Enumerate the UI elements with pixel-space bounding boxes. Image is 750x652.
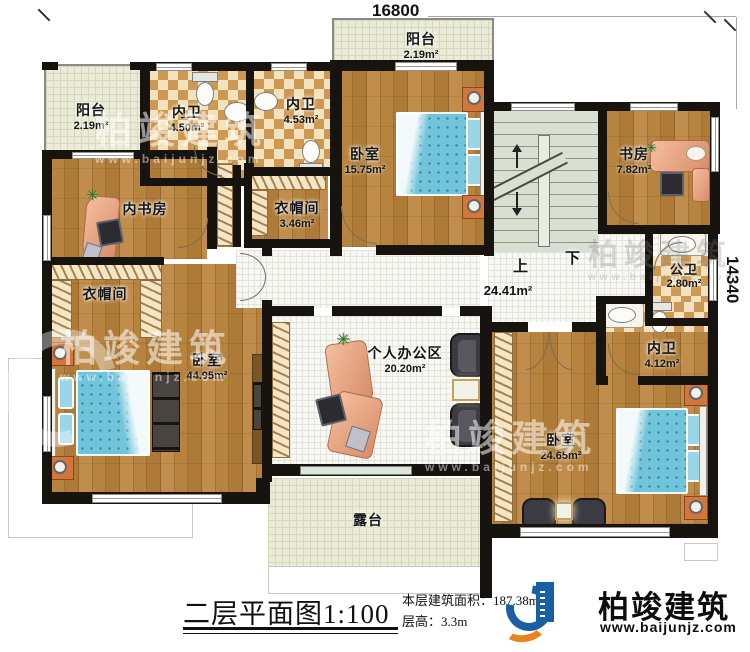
room-label-pub-bath: 公卫 2.80m² (647, 259, 721, 290)
dimension-top: 16800 (372, 1, 419, 21)
stair-arrow-up (512, 144, 522, 152)
office-floor (272, 316, 480, 464)
room-label-bedroom-a: 卧室 15.75m² (325, 144, 405, 176)
bed-blanket (112, 370, 150, 456)
nightstand (462, 87, 486, 112)
lamp-icon (53, 346, 67, 360)
room-label-bath-b: 内卫 4.53m² (261, 94, 341, 126)
room-name: 阳台 (381, 29, 461, 49)
floor-plan: ✳ ✳ ✳ (0, 0, 750, 652)
room-label-inner-study: 内书房 (105, 199, 185, 219)
room-name: 内卫 (622, 338, 702, 358)
closet-rack (217, 164, 233, 246)
room-name: 书房 (594, 144, 674, 164)
stair-rail (538, 135, 550, 247)
room-name: 卧室 (521, 430, 601, 450)
break-mark-icon (38, 9, 51, 22)
closet-rack (50, 263, 162, 280)
wall (638, 376, 718, 385)
room-area: 3.46m² (257, 218, 337, 230)
stairs-up-label: 上 (510, 255, 532, 276)
plant-icon: ✳ (86, 186, 99, 204)
window (511, 103, 575, 111)
stairs-down: 下 (562, 247, 584, 268)
wall (48, 257, 164, 265)
room-name: 卧室 (325, 144, 405, 164)
wall (250, 167, 334, 176)
lamp-icon (467, 199, 481, 213)
window (43, 396, 51, 452)
window (520, 527, 670, 537)
side-table (555, 502, 573, 520)
room-area: 2.19m² (51, 120, 131, 132)
hall-area-label: 24.41m² (448, 283, 568, 298)
wall (244, 239, 336, 248)
wall (488, 322, 528, 332)
room-label-balcony-tl: 阳台 2.19m² (51, 100, 131, 132)
room-name: 内卫 (261, 94, 341, 114)
study-desk (692, 168, 710, 202)
logo-window-dots (540, 587, 545, 617)
room-name: 个人办公区 (345, 343, 465, 363)
drawing-title: 二层平面图 (183, 599, 323, 629)
room-area: 24.65m² (521, 450, 601, 462)
armchair (522, 498, 556, 526)
closet-rack (494, 332, 513, 522)
hat-icon (686, 146, 706, 161)
nightstand (684, 382, 708, 406)
wall (596, 376, 608, 385)
room-label-cloak-b: 衣帽间 (65, 284, 145, 304)
lamp-icon (53, 460, 67, 474)
room-label-study: 书房 7.82m² (594, 144, 674, 176)
lamp-icon (689, 386, 703, 400)
room-label-cloak-a: 衣帽间 3.46m² (257, 198, 337, 230)
room-area: 7.82m² (594, 164, 674, 176)
armchair (450, 403, 482, 447)
room-name: 内卫 (147, 102, 227, 122)
window (271, 63, 307, 71)
wall (484, 60, 494, 256)
wall (262, 242, 272, 256)
room-area: 4.12m² (622, 358, 702, 370)
computer-icon (96, 218, 124, 247)
title-underline (183, 627, 398, 630)
tv-icon (253, 382, 262, 430)
stair-arrow-line (516, 150, 518, 168)
drawing-scale: 1:100 (323, 599, 390, 629)
nightstand (684, 496, 708, 520)
wall (244, 163, 252, 247)
room-area: 4.50m² (147, 122, 227, 134)
stairs-down-label: 下 (562, 247, 584, 268)
bedside-chest (152, 372, 180, 452)
terrace-door (300, 466, 412, 475)
wall (233, 165, 241, 247)
floor-height-value: 3.3m (441, 614, 467, 629)
room-label-master-bedroom: 卧室 44.95m² (167, 350, 247, 382)
eave-outline (684, 543, 718, 561)
toilet-icon (192, 72, 218, 82)
lamp-icon (467, 91, 481, 105)
room-area: 2.80m² (647, 278, 721, 290)
armchair (572, 498, 606, 526)
wall (376, 245, 488, 255)
room-label-balcony-tc: 阳台 2.19m² (381, 29, 461, 61)
window (711, 117, 719, 172)
room-label-terrace: 露台 (328, 510, 408, 530)
nightstand (462, 195, 486, 219)
wall (330, 245, 340, 255)
chair-seat (458, 410, 476, 442)
dimension-right: 14340 (722, 256, 742, 320)
floor-area-label: 本层建筑面积： (402, 593, 493, 608)
room-label-bedroom-b: 卧室 24.65m² (521, 430, 601, 462)
title-block: 二层平面图1:100 (183, 592, 390, 631)
window (156, 63, 192, 71)
wall (246, 62, 254, 172)
room-area: 2.19m² (381, 49, 461, 61)
toilet-icon (302, 140, 320, 163)
wall (332, 306, 442, 316)
floor-height-label: 层高： (402, 614, 441, 629)
window (72, 152, 134, 159)
room-area: 20.20m² (345, 363, 465, 375)
hall-floor (236, 250, 480, 308)
room-label-bath-a: 内卫 4.50m² (147, 102, 227, 134)
break-mark-icon (704, 11, 717, 24)
room-name: 露台 (328, 510, 408, 530)
room-name: 衣帽间 (257, 198, 337, 218)
room-area: 15.75m² (325, 164, 405, 176)
sink-icon (608, 307, 636, 323)
wall (262, 300, 272, 482)
room-label-bath-c: 内卫 4.12m² (622, 338, 702, 370)
stairs-up: 上 (510, 255, 532, 276)
title-underline (183, 633, 398, 634)
brand-logo: 柏竣建筑 www.baijunjz.com (500, 580, 748, 650)
wall (42, 62, 58, 70)
shelf-rack (272, 322, 290, 458)
lamp-icon (689, 500, 703, 514)
room-area: 4.53m² (261, 114, 341, 126)
brand-url: www.baijunjz.com (600, 619, 737, 635)
wall (645, 318, 716, 326)
room-name: 衣帽间 (65, 284, 145, 304)
wall (596, 296, 652, 304)
stair-arrow-down (512, 208, 522, 216)
wall (598, 225, 720, 234)
dimension-line (736, 17, 737, 109)
window (43, 215, 51, 261)
hall-area: 24.41m² (448, 283, 568, 298)
wall (596, 296, 606, 384)
break-mark-icon (724, 19, 737, 32)
pillow (58, 377, 74, 409)
room-name: 阳台 (51, 100, 131, 120)
room-name: 内书房 (105, 199, 185, 219)
side-table (452, 379, 480, 401)
room-label-office: 个人办公区 20.20m² (345, 343, 465, 375)
headboard (699, 406, 707, 496)
room-name: 公卫 (647, 259, 721, 278)
pillow (58, 413, 74, 445)
window (630, 103, 678, 111)
room-name: 卧室 (167, 350, 247, 370)
wall (262, 306, 314, 316)
window (92, 494, 222, 503)
window (395, 62, 457, 71)
bed-blanket (616, 408, 650, 494)
dimension-line (428, 16, 736, 17)
room-area: 44.95m² (167, 370, 247, 382)
